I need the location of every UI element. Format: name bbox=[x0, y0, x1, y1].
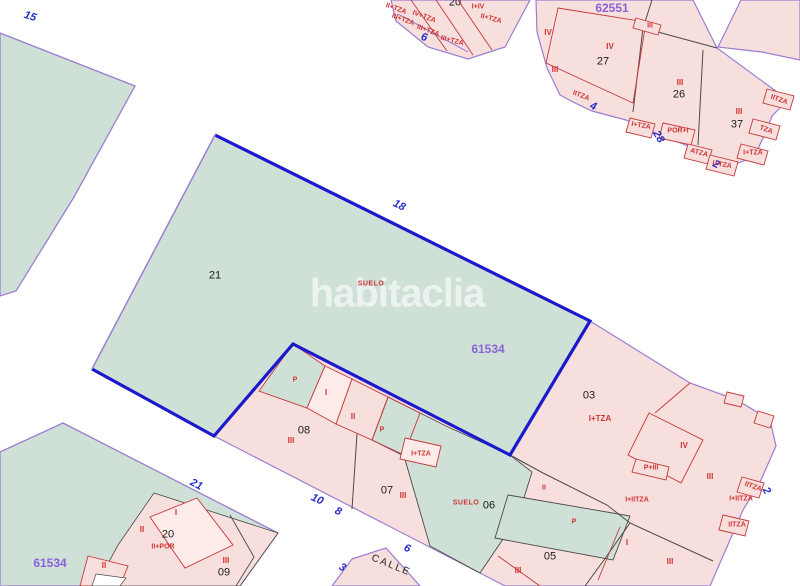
cadastral-map[interactable]: habitaclia 62551615346153415642821810863… bbox=[0, 0, 800, 586]
parcel-block-topright[interactable] bbox=[718, 0, 800, 60]
parcel-street-3[interactable] bbox=[332, 548, 420, 586]
parcel-15[interactable] bbox=[0, 33, 135, 296]
cadastral-map-canvas[interactable] bbox=[0, 0, 800, 586]
parcel-block-top-middle[interactable] bbox=[391, 0, 530, 59]
